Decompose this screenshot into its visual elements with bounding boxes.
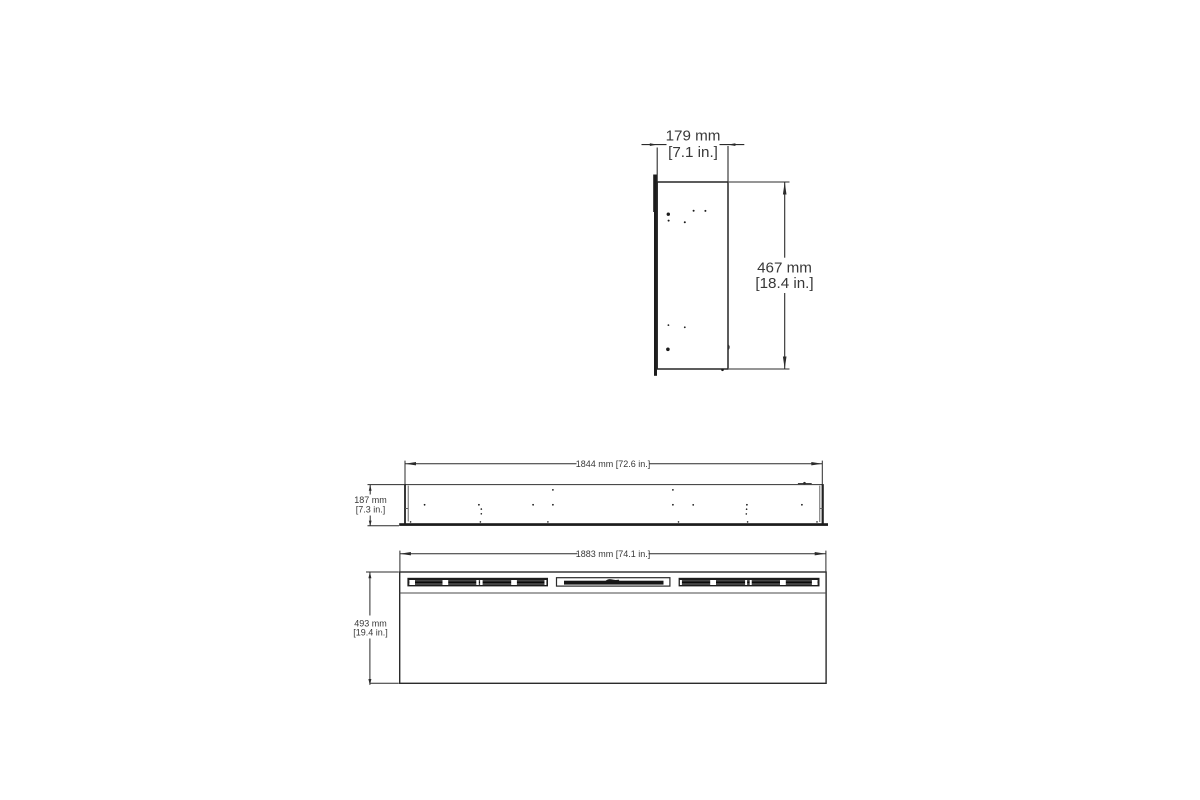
svg-text:467 mm: 467 mm [757,259,812,276]
svg-text:1883 mm [74.1 in.]: 1883 mm [74.1 in.] [576,549,651,559]
svg-text:1844 mm [72.6 in.]: 1844 mm [72.6 in.] [576,459,651,469]
svg-text:179 mm: 179 mm [666,128,721,145]
svg-text:[7.3 in.]: [7.3 in.] [356,504,386,514]
svg-text:[18.4 in.]: [18.4 in.] [755,275,813,292]
svg-text:[19.4 in.]: [19.4 in.] [353,628,388,638]
svg-text:[7.1 in.]: [7.1 in.] [668,144,718,161]
